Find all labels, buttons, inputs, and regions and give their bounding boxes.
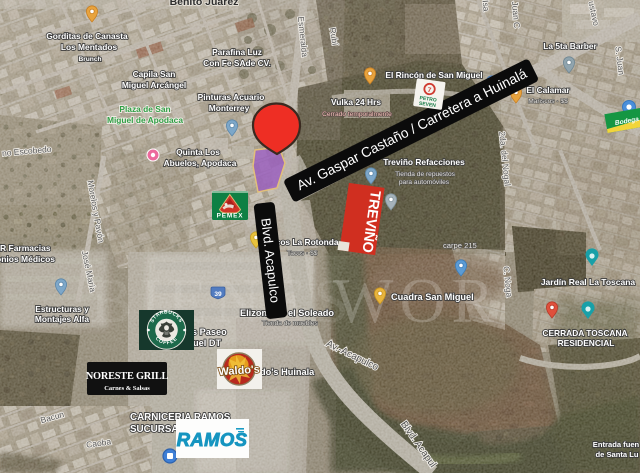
svg-text:Plaza de San: Plaza de San [119,104,170,114]
svg-text:Cerrado temporalmente: Cerrado temporalmente [322,111,392,118]
svg-text:Miguel Arcángel: Miguel Arcángel [122,80,186,90]
svg-text:para automóviles: para automóviles [399,179,450,186]
svg-text:carpe 215: carpe 215 [443,241,477,250]
svg-text:el Soleado: el Soleado [288,308,334,318]
svg-text:Estructuras y: Estructuras y [35,304,89,314]
svg-text:Con Fe SAde CV.: Con Fe SAde CV. [203,58,271,68]
svg-text:Jardín Real La Toscana: Jardín Real La Toscana [541,277,636,287]
svg-text:Los Mentados: Los Mentados [61,42,118,52]
svg-text:RAMOS: RAMOS [177,429,248,450]
svg-text:39: 39 [214,291,222,298]
svg-text:Montajes Alfa: Montajes Alfa [35,314,89,324]
svg-text:Pinturas Acuario: Pinturas Acuario [198,92,265,102]
svg-text:PEMEX: PEMEX [217,213,244,220]
svg-text:Cuadra San Miguel: Cuadra San Miguel [391,292,474,302]
svg-text:Quinta Los: Quinta Los [176,147,220,157]
svg-text:Vulka 24 Hrs: Vulka 24 Hrs [331,97,381,107]
svg-text:El Rincón de San Miguel: El Rincón de San Miguel [385,70,482,80]
svg-text:Mariscos · $$: Mariscos · $$ [528,98,568,105]
svg-text:Isa: Isa [481,0,492,12]
svg-text:RESIDENCIAL: RESIDENCIAL [558,338,615,348]
svg-text:de Santa Lu: de Santa Lu [595,450,638,459]
svg-text:Capila San: Capila San [133,69,176,79]
svg-text:Entrada fuen: Entrada fuen [593,440,640,449]
svg-text:Brunch: Brunch [78,56,101,63]
svg-text:Gorditas de Canasta: Gorditas de Canasta [46,31,128,41]
svg-text:s Paseo: s Paseo [192,327,227,337]
svg-text:Parafina Luz: Parafina Luz [212,47,262,57]
svg-text:CERRADA TOSCANA: CERRADA TOSCANA [542,328,627,338]
svg-text:Treviño Refacciones: Treviño Refacciones [383,157,465,167]
svg-text:La 5ta Barber: La 5ta Barber [543,41,597,51]
svg-text:onios Médicos: onios Médicos [0,254,55,264]
svg-text:Monterrey: Monterrey [209,103,250,113]
svg-text:El Calamar: El Calamar [526,85,570,95]
svg-text:uel DT: uel DT [193,338,221,348]
svg-text:R Farmacias: R Farmacias [0,243,51,253]
svg-text:SUCURSA: SUCURSA [130,424,178,435]
svg-text:Carnes & Salsas: Carnes & Salsas [104,385,150,392]
svg-text:acos La Rotonda: acos La Rotonda [271,237,339,247]
svg-text:Tienda de muebles: Tienda de muebles [262,320,319,327]
svg-text:Benito Juárez: Benito Juárez [170,0,239,8]
svg-text:NORESTE GRILL: NORESTE GRILL [86,371,169,382]
svg-text:Abuelos, Apodaca: Abuelos, Apodaca [164,158,237,168]
svg-text:do's Huinala: do's Huinala [260,367,315,377]
svg-text:Tienda de repuestos: Tienda de repuestos [395,171,456,178]
svg-text:Tacos · $$: Tacos · $$ [287,250,318,257]
svg-text:Miguel de Apodaca: Miguel de Apodaca [107,115,183,125]
